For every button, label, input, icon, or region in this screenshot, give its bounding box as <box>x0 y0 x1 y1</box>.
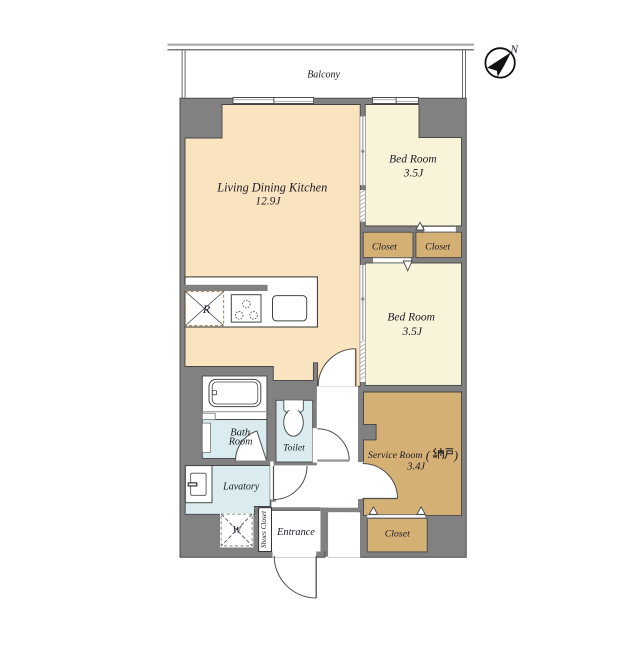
svg-text:3.5J: 3.5J <box>401 326 422 338</box>
svg-text:Living Dining Kitchen: Living Dining Kitchen <box>216 180 327 194</box>
svg-text:Closet: Closet <box>385 529 410 540</box>
svg-text:Bed Room: Bed Room <box>389 154 437 166</box>
svg-text:N: N <box>509 44 519 56</box>
svg-text:Shoes Closet: Shoes Closet <box>260 510 268 548</box>
svg-text:3.5J: 3.5J <box>403 167 424 179</box>
svg-text:Closet: Closet <box>372 242 397 253</box>
svg-text:Balcony: Balcony <box>307 70 340 81</box>
svg-text:W: W <box>232 525 242 536</box>
svg-text:12.9J: 12.9J <box>255 196 281 208</box>
svg-text:R: R <box>202 302 211 316</box>
svg-text:3.4J: 3.4J <box>406 462 426 473</box>
svg-text:Bed Room: Bed Room <box>387 311 435 323</box>
svg-text:Closet: Closet <box>425 242 450 253</box>
svg-text:Lavatory: Lavatory <box>222 481 260 492</box>
svg-text:Entrance: Entrance <box>276 527 315 538</box>
svg-text:Service Room: Service Room <box>368 450 423 461</box>
svg-text:Room: Room <box>228 437 253 448</box>
svg-text:Toilet: Toilet <box>283 443 305 454</box>
svg-text:): ) <box>453 448 458 462</box>
